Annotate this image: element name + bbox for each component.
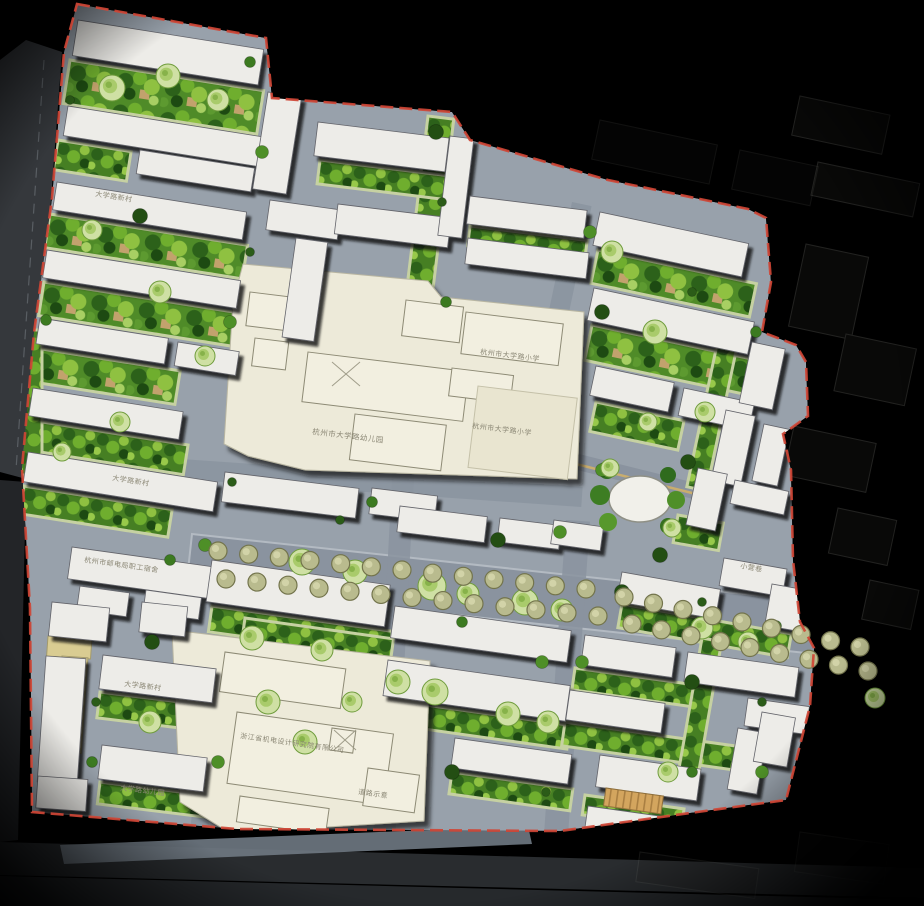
site-plan-map: 大学路新村 大学路新村 杭州市大学路幼儿园 杭州市大学路小学 杭州市大学路小学 … (0, 0, 924, 906)
vignette-overlay (0, 0, 924, 906)
site-plan-canvas: 大学路新村 大学路新村 杭州市大学路幼儿园 杭州市大学路小学 杭州市大学路小学 … (0, 0, 924, 906)
